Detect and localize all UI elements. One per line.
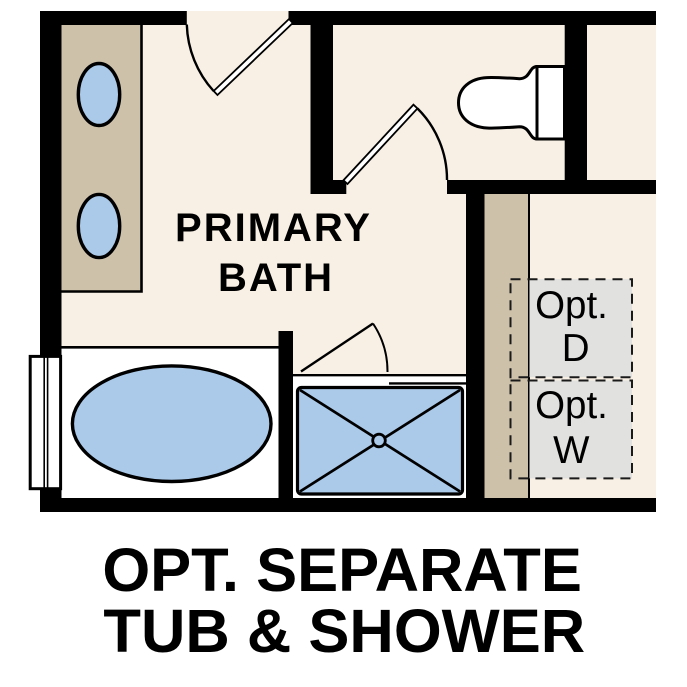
svg-text:D: D (562, 327, 590, 370)
svg-text:PRIMARY: PRIMARY (175, 206, 372, 250)
svg-text:BATH: BATH (218, 256, 334, 300)
svg-text:W: W (553, 429, 590, 472)
svg-text:OPT. SEPARATE: OPT. SEPARATE (102, 536, 582, 605)
svg-text:Opt.: Opt. (535, 284, 608, 327)
svg-text:TUB & SHOWER: TUB & SHOWER (103, 597, 585, 666)
svg-text:Opt.: Opt. (535, 384, 608, 427)
